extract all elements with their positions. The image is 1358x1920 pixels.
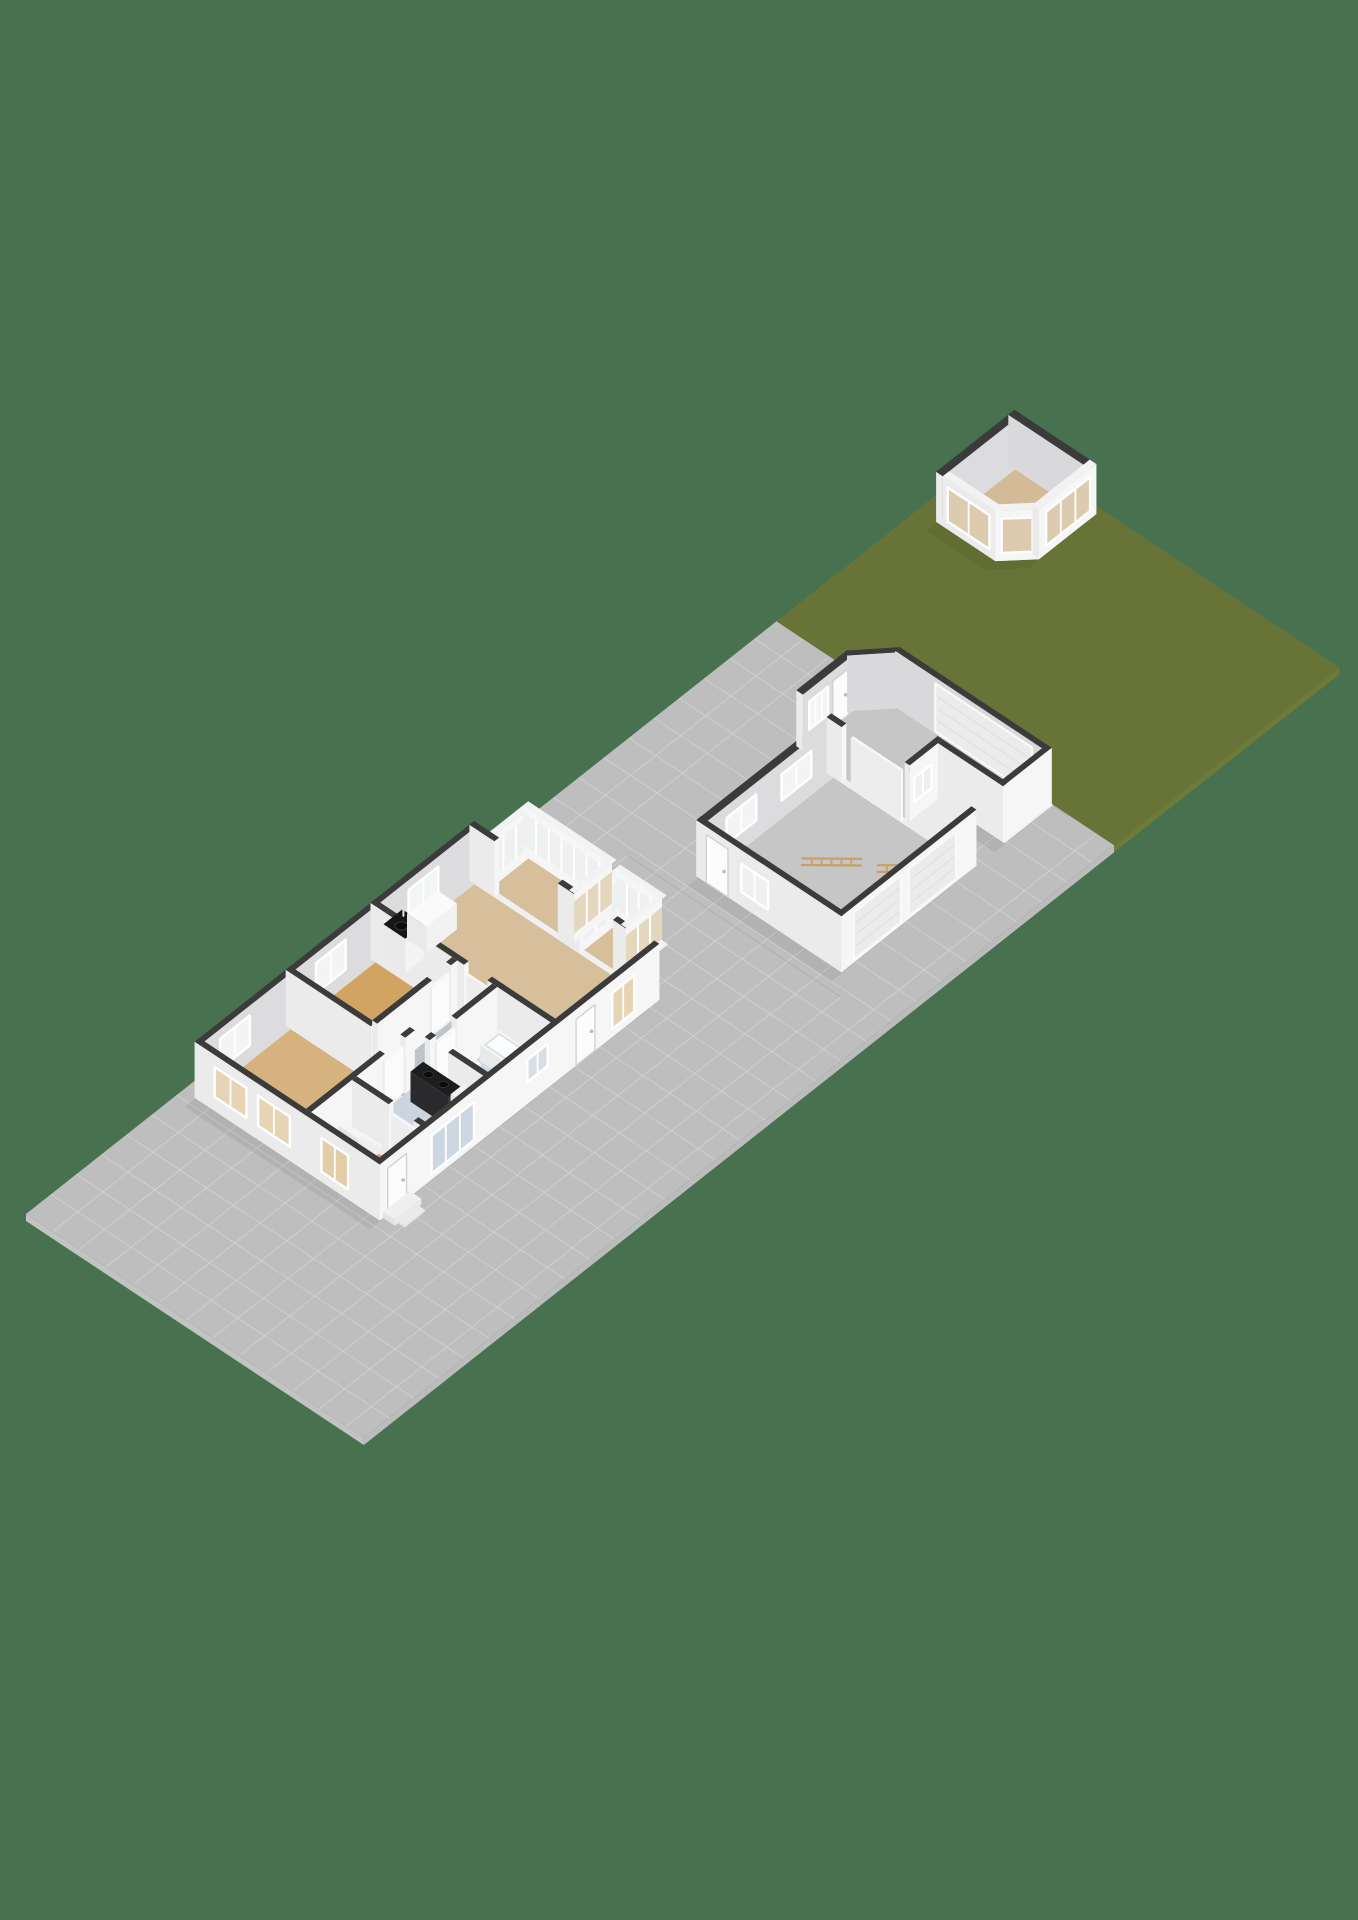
window <box>1002 518 1033 553</box>
sink-bowl <box>395 922 408 930</box>
cooktop-burner <box>423 1071 433 1077</box>
site-plan-render <box>0 0 1358 1920</box>
floorplanner-3d-page: { "scene": { "view": "3d-site-plan", "co… <box>0 0 1358 1920</box>
floorplan-3d-viewport[interactable] <box>0 0 1358 1920</box>
cooktop-burner <box>439 1081 449 1087</box>
